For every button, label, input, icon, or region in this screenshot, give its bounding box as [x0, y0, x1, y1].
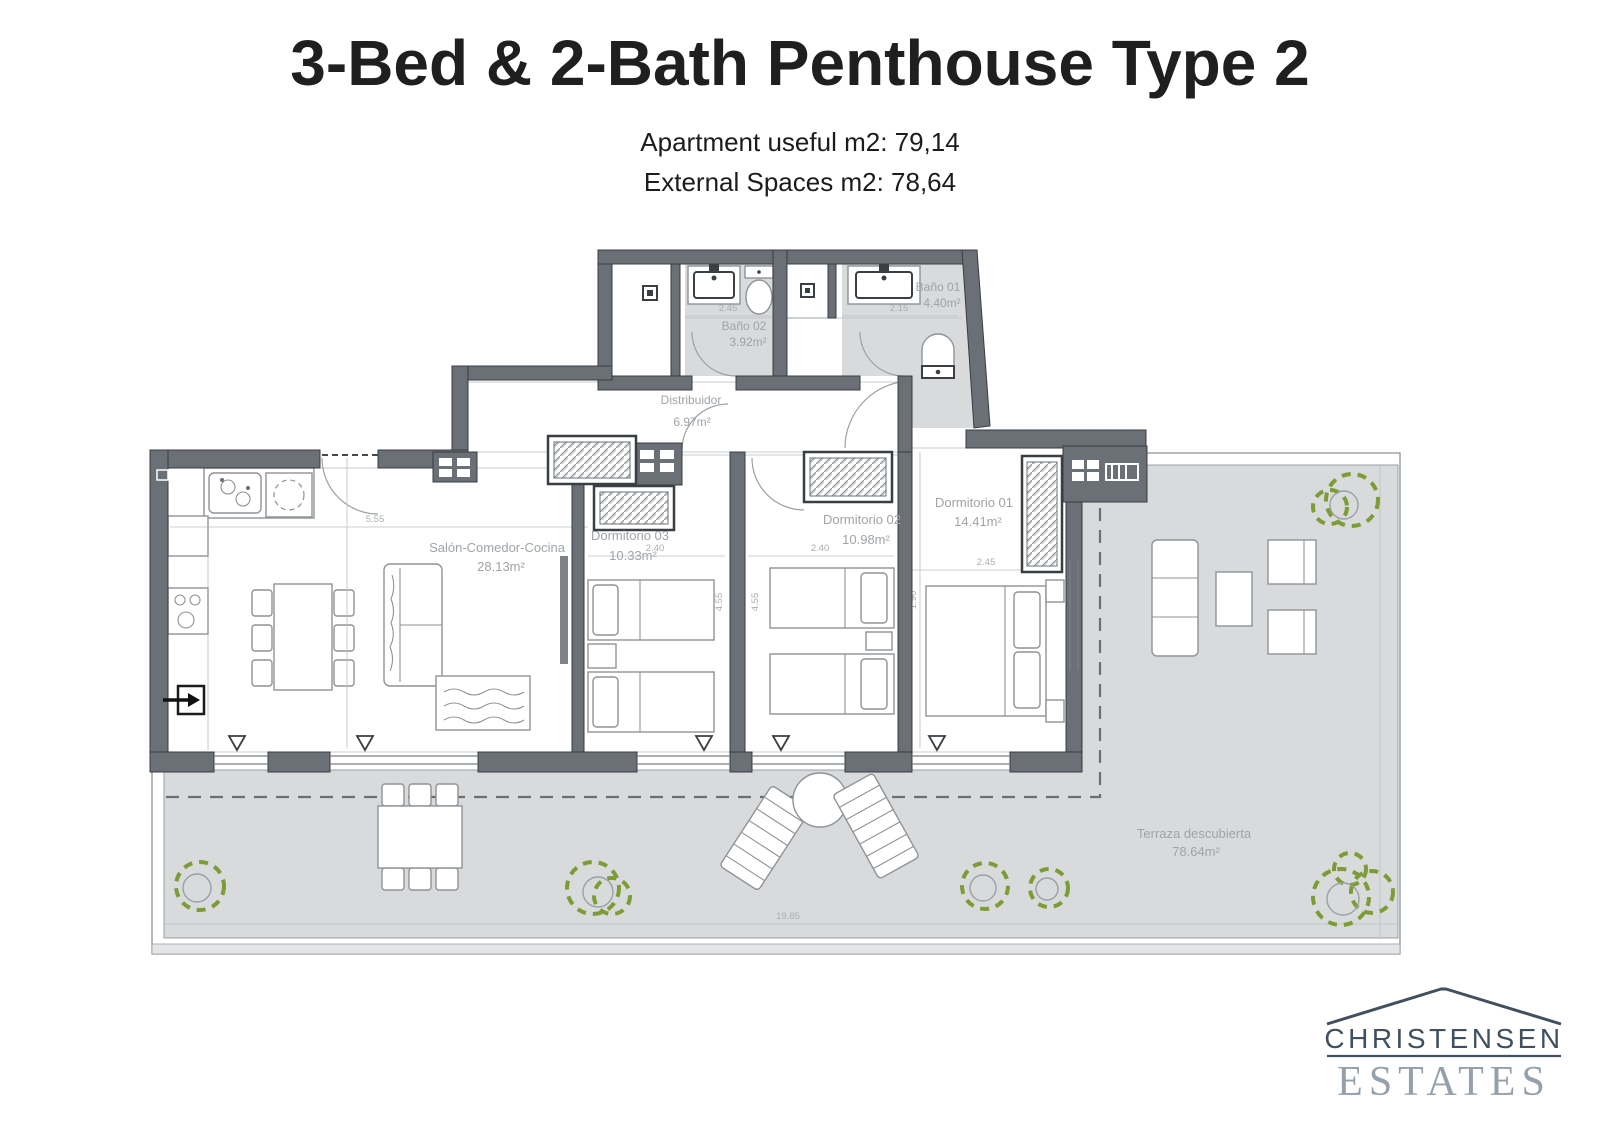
outdoor-sofa	[1152, 540, 1198, 656]
logo-type: ESTATES	[1337, 1059, 1551, 1105]
fridge	[168, 516, 208, 556]
chair	[252, 660, 272, 686]
vent-block	[634, 443, 682, 485]
tv-console	[436, 676, 530, 730]
terrace-chair	[436, 868, 458, 890]
toilet-bano01	[922, 334, 954, 378]
dim-dorm01-width: 2.45	[977, 557, 996, 568]
room-area-bano02: 3.92m²	[729, 335, 766, 349]
chair	[334, 660, 354, 686]
room-area-dorm01: 14.41m²	[954, 514, 1002, 529]
room-area-bano01: 4.40m²	[923, 296, 960, 310]
dorm03-beds	[588, 580, 714, 732]
dim-bano01-width: 2.15	[890, 303, 909, 314]
entry-door-symbol	[163, 686, 204, 714]
room-label-dorm03: Dormitorio 03	[591, 528, 669, 543]
dim-dorm02-depth: 4.55	[750, 593, 761, 612]
pillow	[1014, 592, 1040, 648]
room-area-distribuidor: 6.97m²	[673, 415, 710, 429]
chair	[252, 625, 272, 651]
washer	[266, 473, 312, 517]
dim-salon-width: 5.55	[366, 514, 385, 525]
wardrobe-dorm02	[804, 452, 892, 502]
shower-bano02	[612, 264, 671, 376]
dorm02-beds	[770, 568, 894, 714]
vent-block	[433, 452, 477, 482]
wardrobe-hall	[548, 436, 636, 484]
logo-roof-icon	[1327, 989, 1561, 1024]
door-arc-dorm02	[752, 458, 804, 510]
chair	[334, 590, 354, 616]
window-marker	[229, 736, 945, 750]
pillow	[1014, 652, 1040, 708]
tv	[560, 556, 568, 664]
dim-dorm03-depth: 4.55	[714, 593, 725, 612]
terrace-chair	[409, 868, 431, 890]
room-area-dorm03: 10.33m²	[609, 548, 657, 563]
pillow	[861, 573, 887, 623]
stove	[168, 588, 208, 634]
room-label-dorm01: Dormitorio 01	[935, 495, 1013, 510]
wardrobe-dorm01	[1022, 456, 1062, 572]
pillow	[593, 677, 618, 727]
logo: CHRISTENSEN ESTATES	[1324, 989, 1563, 1105]
room-label-terraza: Terraza descubierta	[1137, 826, 1252, 841]
floorplan-svg: Terraza descubierta 78.64m² 19.85	[0, 0, 1600, 1131]
room-area-salon: 28.13m²	[477, 559, 525, 574]
room-label-distribuidor: Distribuidor	[661, 393, 722, 407]
chair	[334, 625, 354, 651]
door-arc-kitchen	[322, 458, 378, 514]
terrace-chair	[382, 868, 404, 890]
terrace-chair	[409, 784, 431, 806]
dining-set	[252, 584, 354, 690]
chair	[252, 590, 272, 616]
toilet-bano02	[745, 266, 773, 314]
pillow	[593, 585, 618, 635]
terrace-curb	[152, 944, 1400, 954]
outdoor-armchair	[1268, 540, 1316, 584]
vanity-bano01	[848, 263, 920, 304]
room-area-dorm02: 10.98m²	[842, 532, 890, 547]
floorplan-page: 3-Bed & 2-Bath Penthouse Type 2 Apartmen…	[0, 0, 1600, 1131]
dim-dorm02-width: 2.40	[811, 543, 830, 554]
room-label-bano01: Baño 01	[916, 280, 961, 294]
utility-block	[1063, 446, 1147, 502]
terrace-chair	[436, 784, 458, 806]
terrace-dining-table	[378, 806, 462, 868]
nightstand	[1046, 580, 1064, 602]
shower-bano01	[787, 264, 828, 318]
pillow	[861, 659, 887, 709]
nightstand	[588, 644, 616, 668]
vanity-bano02	[688, 263, 740, 304]
apartment: 5.55 2.40 2.40 2.45 2.45 2.15 1.90 4.55 …	[150, 250, 1147, 772]
room-label-salon: Salón-Comedor-Cocina	[429, 540, 566, 555]
dim-bano02-width: 2.45	[719, 303, 738, 314]
outdoor-armchair	[1268, 610, 1316, 654]
room-area-terraza: 78.64m²	[1172, 844, 1220, 859]
kitchen-sink	[209, 473, 261, 513]
terrace-dining-set	[378, 784, 462, 890]
logo-name: CHRISTENSEN	[1324, 1023, 1563, 1054]
sofa	[384, 564, 442, 686]
room-label-dorm02: Dormitorio 02	[823, 512, 901, 527]
terrace-chair	[382, 784, 404, 806]
nightstand	[866, 632, 892, 650]
nightstand	[1046, 700, 1064, 722]
dining-table	[274, 584, 332, 690]
dim-terrace-width: 19.85	[776, 911, 800, 922]
outdoor-coffee-table	[1216, 572, 1252, 626]
wardrobe-dorm03	[594, 486, 674, 530]
room-label-bano02: Baño 02	[722, 319, 767, 333]
dorm01-bed	[926, 580, 1064, 722]
